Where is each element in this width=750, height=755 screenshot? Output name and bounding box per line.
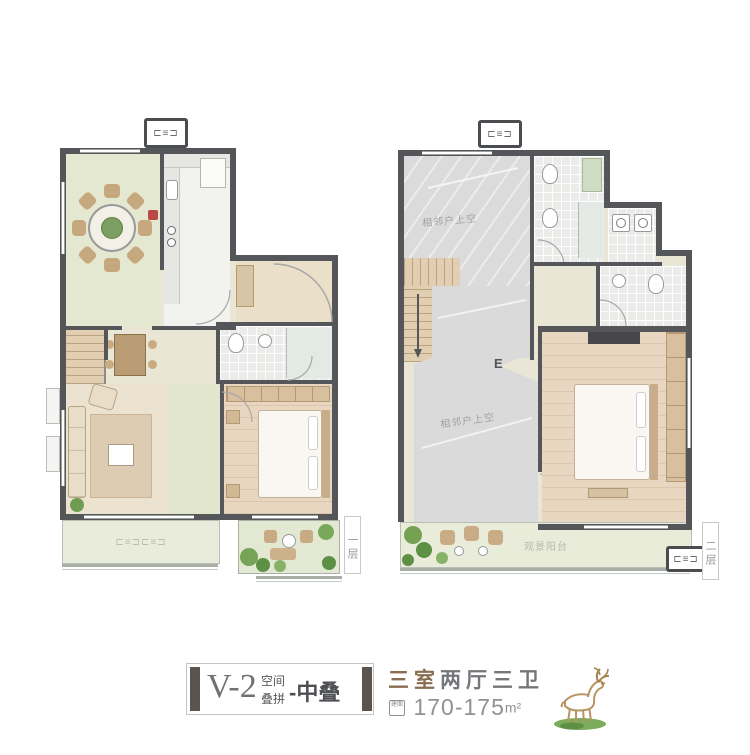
shrub (322, 556, 336, 570)
window (80, 149, 140, 153)
highchair (148, 210, 158, 220)
terrace-table (282, 534, 296, 548)
dining-chair (72, 220, 86, 236)
balcony-chair (488, 530, 503, 545)
balcony-rail-line (62, 569, 218, 570)
shower-area (286, 328, 331, 378)
toilet (228, 333, 244, 353)
floor-tab-first-label: 一层 (346, 534, 358, 562)
toilet (648, 274, 664, 294)
pillow (308, 416, 318, 450)
wardrobe (666, 332, 686, 482)
balcony-rail-line (400, 573, 690, 574)
window (84, 515, 194, 519)
toilet (542, 208, 558, 228)
balcony-chair (440, 530, 455, 545)
balcony: ⊏≡⊐⊏≡⊐ (62, 520, 220, 564)
staircase-lower-flight (404, 286, 433, 362)
wardrobe (226, 386, 330, 402)
section-marker-icon: ⊏≡⊐ (666, 546, 706, 572)
rooms-summary: 三室两厅三卫 (388, 664, 544, 694)
stove-burner (167, 238, 176, 247)
terrace-chair (264, 530, 277, 543)
wall (230, 148, 236, 261)
floorplan-second-floor: ⊏≡⊐ 相邻户上空 相邻户上空 E (398, 118, 720, 596)
sofa (68, 406, 86, 498)
wall-bedroom (538, 332, 542, 472)
island-stool (148, 340, 157, 349)
area-unit: m² (505, 700, 521, 716)
dining-chair (138, 220, 152, 236)
floor-tab-second-label: 二层 (704, 540, 716, 568)
floor-tab-second: 二层 (702, 522, 719, 580)
wall-kitchen-divider (160, 154, 164, 270)
area-stamp-icon: 建面 (389, 700, 405, 716)
box-bar-right (362, 667, 372, 711)
wall-void-right (530, 156, 534, 360)
stove-burner (167, 226, 176, 235)
wall (604, 202, 662, 208)
wall (656, 202, 662, 256)
washer-drum (638, 218, 648, 228)
toilet (542, 164, 558, 184)
terrace-chair (300, 530, 313, 543)
wall (66, 326, 122, 330)
shrub (436, 552, 448, 564)
shrub (402, 554, 414, 566)
wall (216, 322, 220, 384)
window (61, 410, 65, 486)
rooms-rest: 两厅三卫 (440, 669, 544, 692)
wall (596, 266, 600, 330)
shoe-cabinet (236, 265, 254, 307)
wall (604, 150, 610, 208)
bathroom-right (600, 266, 686, 326)
window (422, 151, 492, 155)
section-marker-text: ⊏≡⊐ (153, 128, 179, 139)
wall (216, 322, 336, 326)
unit-code-box: V-2 空间 叠拼 -中叠 (186, 663, 374, 715)
bed-bench (588, 488, 628, 498)
balcony-label: 观景阳台 (524, 538, 568, 553)
bed-headboard (322, 410, 330, 498)
dining-centerpiece (101, 217, 123, 239)
balcony-chair (464, 526, 479, 541)
wall (230, 255, 338, 261)
section-marker-icon: ⊏≡⊐ (478, 120, 522, 148)
section-marker-text: ⊏≡⊐ (673, 554, 699, 565)
window (61, 182, 65, 254)
wall (332, 255, 338, 520)
wall-bedroom (220, 384, 224, 514)
terrace-bench (270, 548, 296, 560)
balcony-rail (62, 564, 218, 567)
kitchen-sink (166, 180, 178, 200)
pillow (636, 392, 646, 428)
balcony-rail (400, 568, 690, 571)
pillow (636, 436, 646, 472)
wall (152, 326, 236, 330)
balcony-marks: ⊏≡⊐⊏≡⊐ (115, 537, 166, 548)
unit-tag-top: 空间 (261, 672, 285, 689)
shrub (416, 542, 432, 558)
island-stool (105, 360, 114, 369)
bath-counter (582, 158, 602, 192)
terrace-rail-line (256, 581, 342, 582)
staircase (66, 330, 106, 384)
floorplan-first-floor: ⊏≡⊐ (60, 118, 362, 596)
stair-label: E (494, 356, 503, 371)
wall (398, 150, 404, 522)
hall (168, 384, 220, 514)
balcony-table (454, 546, 464, 556)
window (252, 515, 318, 519)
bathroom-sink (612, 274, 626, 288)
tv-cabinet (588, 332, 640, 344)
box-bar-left (190, 667, 200, 711)
rooms-accent: 三室 (388, 669, 440, 692)
unit-tag-suffix: -中叠 (289, 675, 340, 707)
equipment-platform (46, 388, 60, 424)
shrub (404, 526, 422, 544)
area-value: 170-175 (413, 694, 504, 720)
section-marker-text: ⊏≡⊐ (487, 129, 513, 140)
wall (538, 326, 692, 332)
floor-tab-first: 一层 (344, 516, 361, 574)
nightstand (226, 484, 240, 498)
pillow (308, 456, 318, 490)
shower-area (578, 202, 603, 258)
wall (216, 380, 336, 384)
shrub (256, 558, 270, 572)
wall-stair (104, 330, 108, 360)
area-row: 建面 170-175m² (389, 694, 521, 714)
plant (70, 498, 84, 512)
equipment-platform (46, 436, 60, 472)
unit-code: V-2 (207, 668, 257, 706)
deer-icon (552, 656, 612, 732)
unit-tag-bottom: 叠拼 (261, 690, 285, 707)
balcony-table (478, 546, 488, 556)
island-stool (148, 360, 157, 369)
window (687, 358, 691, 448)
terrace-rail (256, 576, 342, 579)
dining-chair (104, 258, 120, 272)
coffee-table (108, 444, 134, 466)
fridge (200, 158, 226, 188)
shrub (274, 560, 286, 572)
nightstand (226, 410, 240, 424)
island-counter (114, 334, 146, 376)
window (584, 525, 668, 529)
dining-chair (104, 184, 120, 198)
shrub (318, 524, 334, 540)
bed-headboard (650, 384, 658, 480)
staircase-upper-flight (404, 258, 460, 287)
area-stamp-text: 建面 (391, 702, 403, 708)
washer-drum (616, 218, 626, 228)
section-marker-icon: ⊏≡⊐ (144, 118, 188, 148)
bathroom-sink (258, 334, 272, 348)
